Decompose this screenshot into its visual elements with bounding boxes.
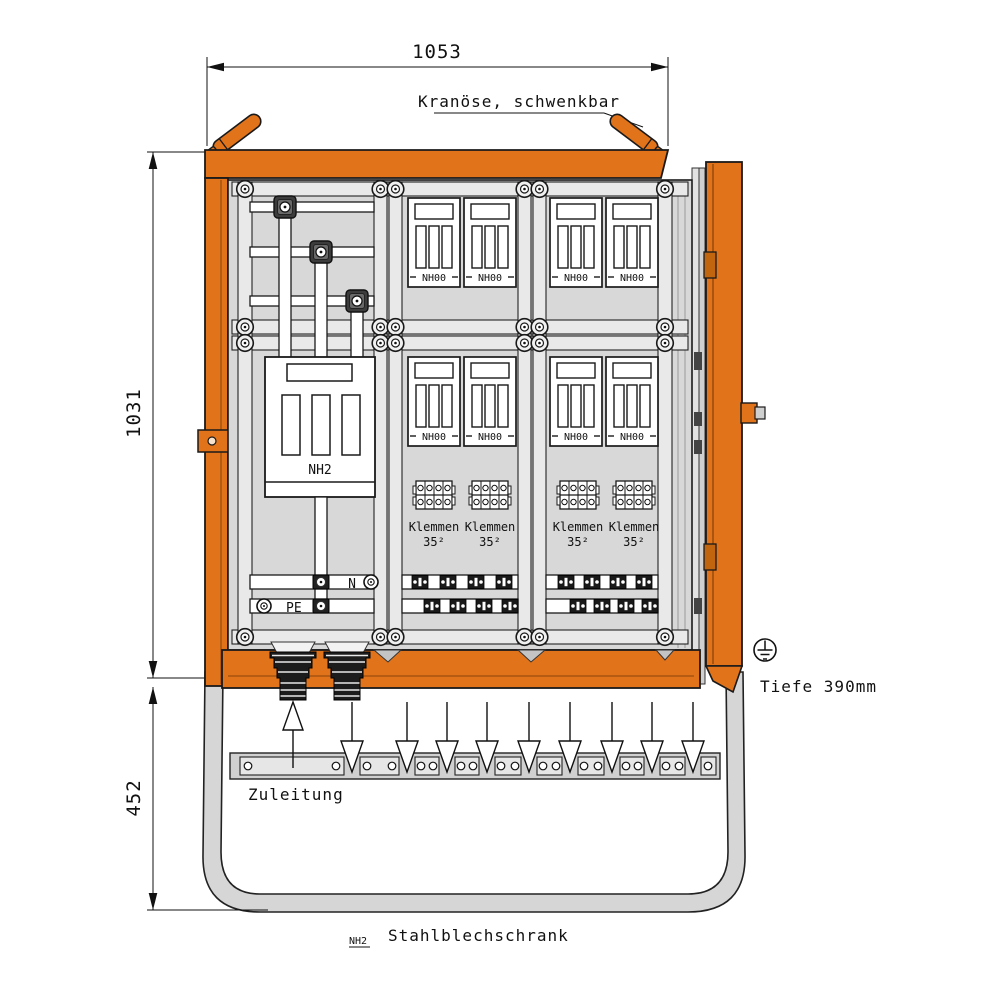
door-lock-mark <box>694 598 702 614</box>
nh00-label: NH00 <box>422 432 446 443</box>
terminal-block <box>469 481 511 509</box>
cabinet-ref-label: NH2 <box>349 936 367 947</box>
wire-clamp-icon <box>594 600 610 613</box>
neutral-label: N <box>348 577 356 592</box>
screw-icon <box>372 181 389 198</box>
wire-clamp-icon <box>468 576 484 589</box>
door-panel <box>692 162 765 692</box>
wire-clamp-icon <box>558 576 574 589</box>
wire-clamp-icon <box>424 600 440 613</box>
supply-label: Zuleitung <box>248 785 344 804</box>
wire-clamp-icon <box>610 576 626 589</box>
dimension-stand-height: 452 <box>123 687 268 910</box>
terminal-block <box>557 481 599 509</box>
dim-body-height-label: 1031 <box>123 388 145 438</box>
screw-icon <box>531 335 548 352</box>
screw-icon <box>237 335 254 352</box>
nh00-label: NH00 <box>564 432 588 443</box>
door-slab <box>706 162 742 666</box>
dim-width-label: 1053 <box>412 41 462 63</box>
screw-icon <box>516 335 533 352</box>
wire-clamp-icon <box>502 600 518 613</box>
door-hinge-icon <box>704 252 716 278</box>
screw-icon <box>237 319 254 336</box>
wire-clamp-icon <box>618 600 634 613</box>
wire-clamp-icon <box>496 576 512 589</box>
screw-icon <box>657 629 674 646</box>
technical-drawing-page: 1053 1031 452 Kranöse, schwenkbar <box>0 0 1000 1000</box>
busbar-clamp-icon <box>274 196 296 218</box>
nh2-switch-label: NH2 <box>308 463 331 478</box>
up-arrow-icon <box>283 702 303 730</box>
screw-icon <box>531 629 548 646</box>
earth-symbol-icon <box>754 639 776 661</box>
screw-icon <box>516 181 533 198</box>
wire-clamp-icon <box>570 600 586 613</box>
screw-icon <box>372 629 389 646</box>
nh00-label: NH00 <box>478 432 502 443</box>
terminal-label: Klemmen <box>409 520 460 534</box>
dim-stand-height-label: 452 <box>123 779 145 816</box>
door-lock-mark <box>694 412 702 426</box>
screw-icon <box>657 319 674 336</box>
wire-clamp-icon <box>412 576 428 589</box>
cable-gland-icon <box>270 652 316 700</box>
screw-icon <box>531 181 548 198</box>
dimension-body-height: 1031 <box>123 152 218 678</box>
door-hinge-icon <box>704 544 716 570</box>
screw-icon <box>657 181 674 198</box>
nh00-label: NH00 <box>620 432 644 443</box>
terminal-block <box>613 481 655 509</box>
crane-eye-callout: Kranöse, schwenkbar <box>418 92 643 127</box>
terminal-label: Klemmen <box>465 520 516 534</box>
busbar-clamp-icon <box>310 241 332 263</box>
wire-clamp-icon <box>440 576 456 589</box>
screw-icon <box>387 629 404 646</box>
crane-eye-label: Kranöse, schwenkbar <box>418 92 620 111</box>
wire-clamp-icon <box>476 600 492 613</box>
screw-icon <box>531 319 548 336</box>
screw-icon <box>387 319 404 336</box>
bar-clamp-icon <box>313 599 329 613</box>
door-latch-tip <box>755 407 765 419</box>
screw-icon <box>387 181 404 198</box>
busbar-clamp-icon <box>346 290 368 312</box>
wire-clamp-icon <box>636 576 652 589</box>
nh00-label: NH00 <box>422 273 446 284</box>
terminal-size-label: 35² <box>623 535 645 549</box>
wire-clamp-icon <box>450 600 466 613</box>
cable-gland-icon <box>324 652 370 700</box>
nh2-switch: NH2 <box>265 357 375 497</box>
screw-icon <box>372 319 389 336</box>
neutral-terminal-icon <box>364 575 378 589</box>
pe-terminal-icon <box>257 599 271 613</box>
terminal-block <box>413 481 455 509</box>
screw-icon <box>516 629 533 646</box>
terminal-label: Klemmen <box>609 520 660 534</box>
terminal-label: Klemmen <box>553 520 604 534</box>
nh00-label: NH00 <box>478 273 502 284</box>
door-lock-mark <box>694 352 702 370</box>
screw-icon <box>657 335 674 352</box>
caption: NH2 Stahlblechschrank <box>349 926 569 947</box>
hinge-pin-icon <box>208 437 216 445</box>
roof-beam <box>205 150 668 178</box>
depth-label: Tiefe 390mm <box>760 677 877 696</box>
nh00-label: NH00 <box>564 273 588 284</box>
cabinet-type-label: Stahlblechschrank <box>388 926 569 945</box>
bottom-band <box>222 642 700 700</box>
wire-clamp-icon <box>642 600 658 613</box>
screw-icon <box>237 629 254 646</box>
nh00-label: NH00 <box>620 273 644 284</box>
terminal-size-label: 35² <box>479 535 501 549</box>
screw-icon <box>516 319 533 336</box>
cabinet-drawing: 1053 1031 452 Kranöse, schwenkbar <box>0 0 1000 1000</box>
door-lock-mark <box>694 440 702 454</box>
bar-clamp-icon <box>313 575 329 589</box>
screw-icon <box>237 181 254 198</box>
pe-label: PE <box>286 601 302 616</box>
terminal-size-label: 35² <box>423 535 445 549</box>
screw-icon <box>372 335 389 352</box>
terminal-size-label: 35² <box>567 535 589 549</box>
screw-icon <box>387 335 404 352</box>
wire-clamp-icon <box>584 576 600 589</box>
